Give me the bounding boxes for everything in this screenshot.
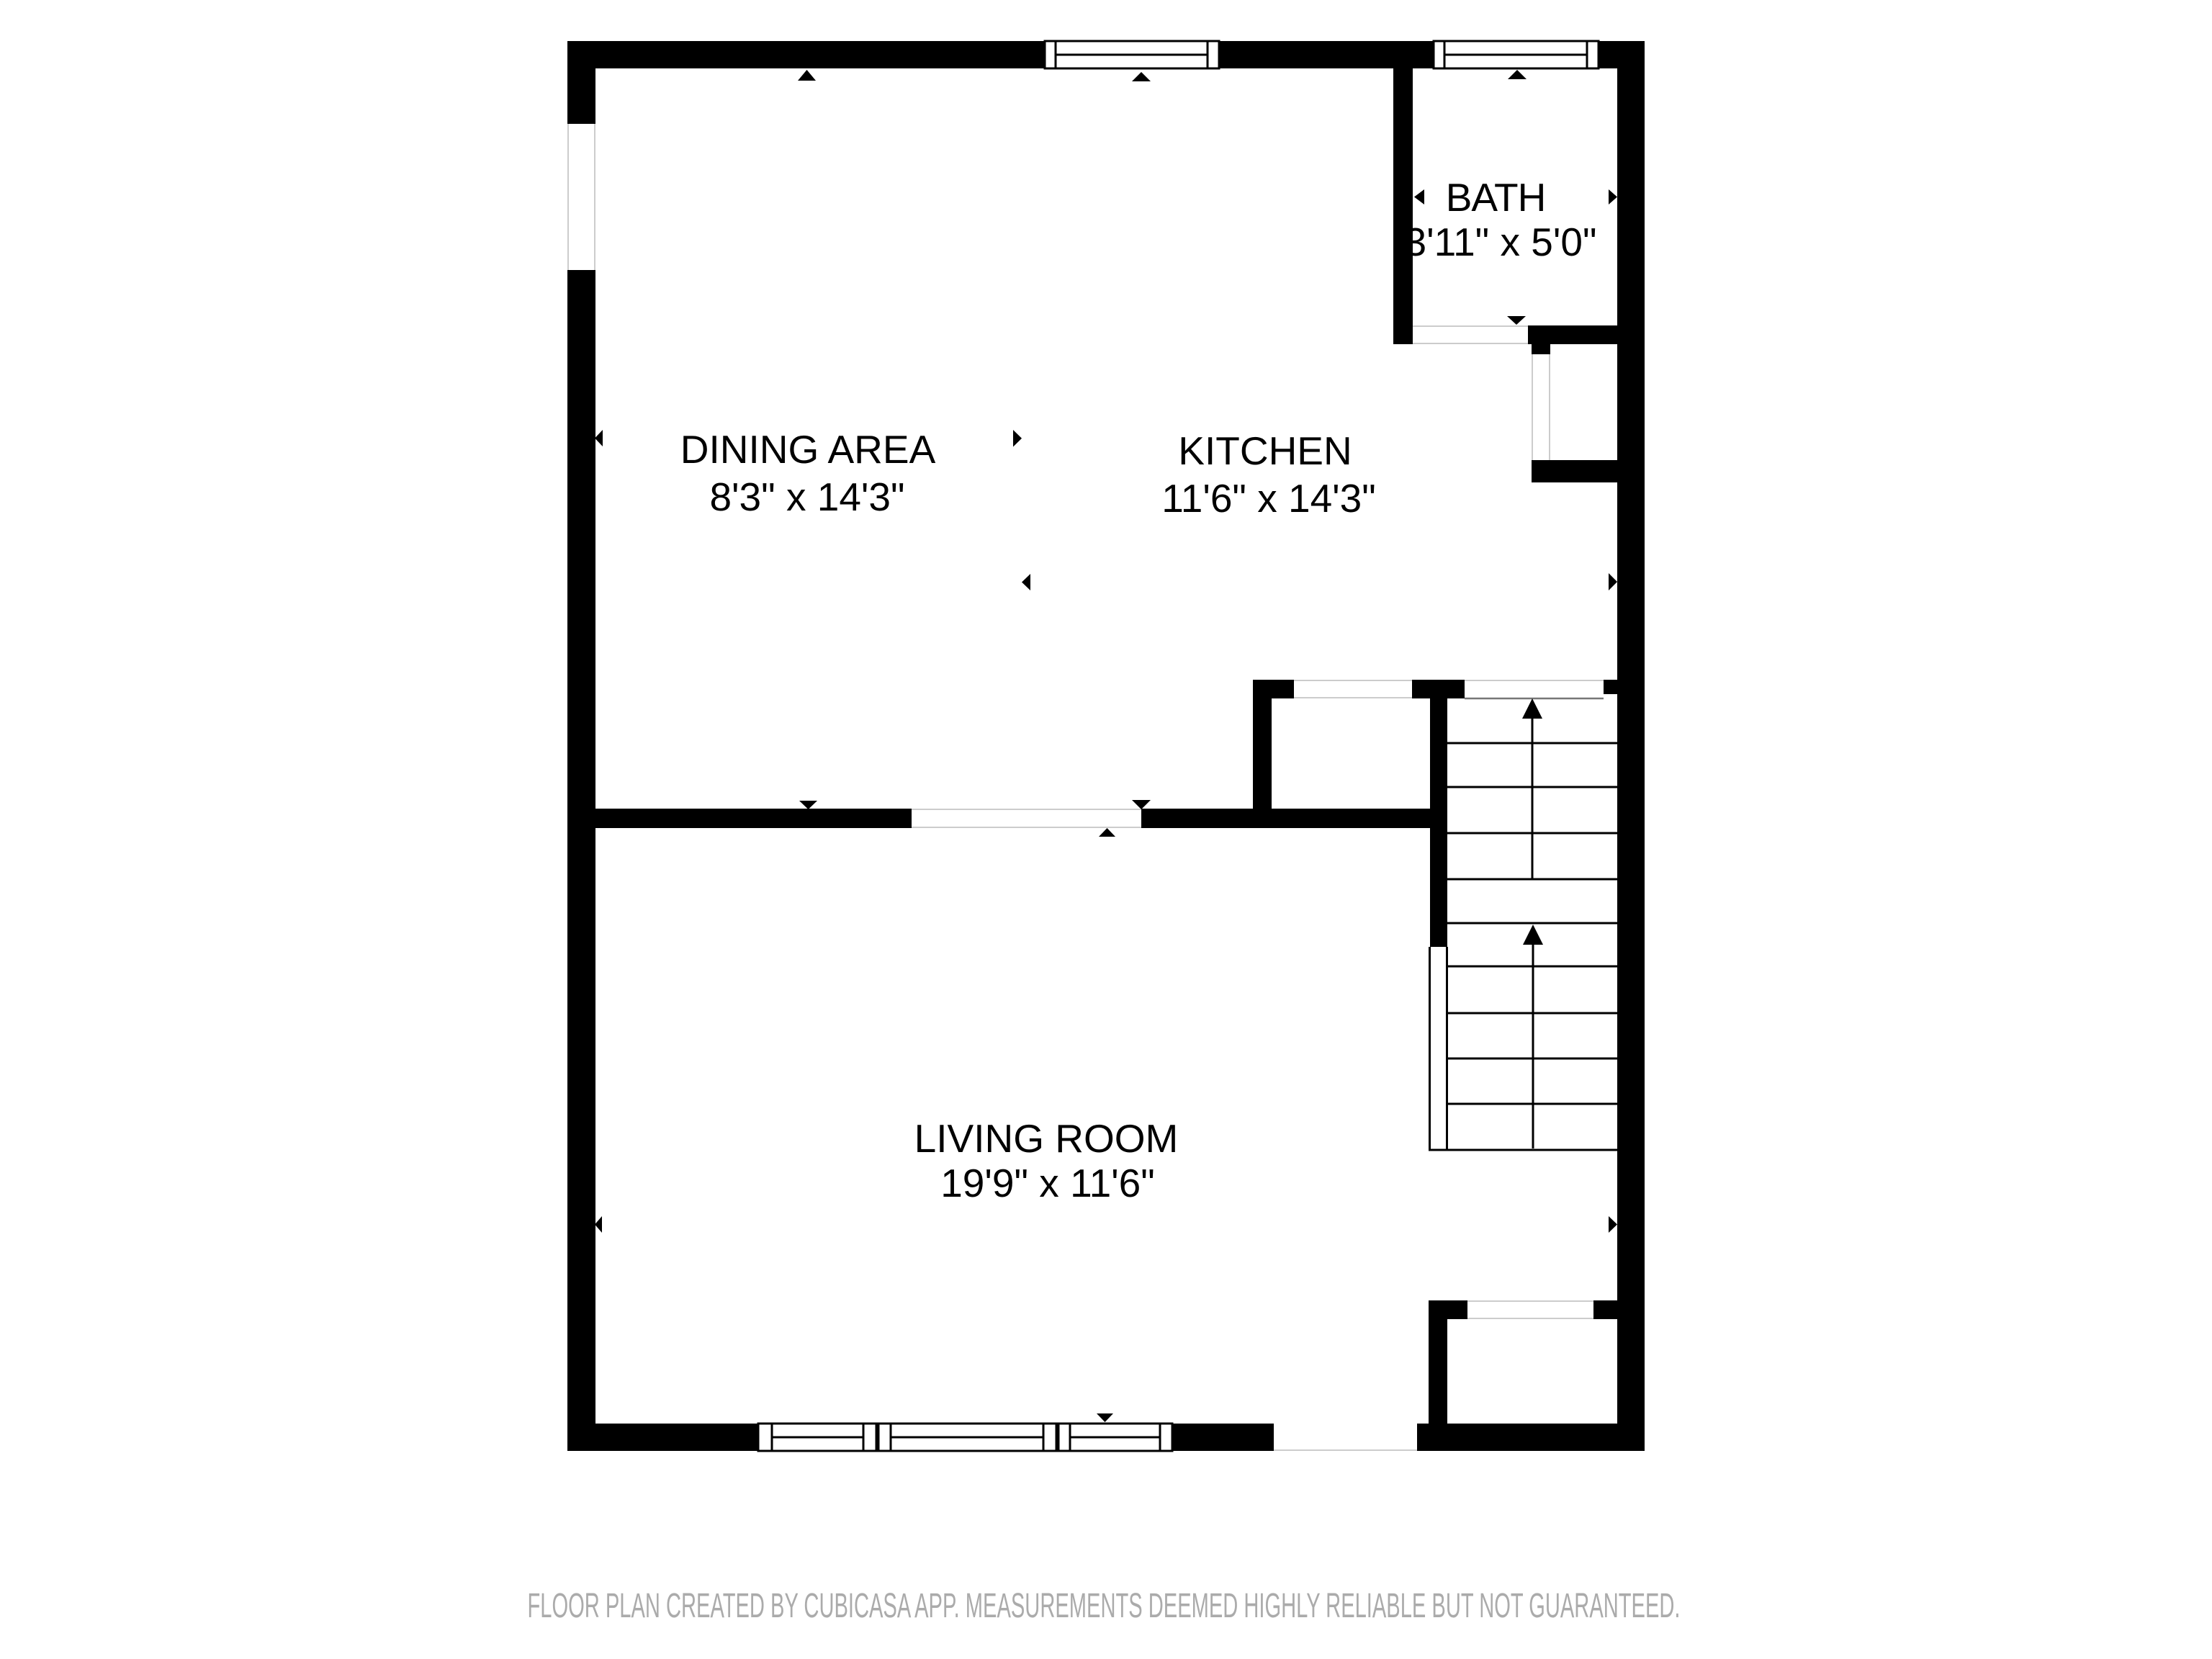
svg-text:11'6" x 14'3": 11'6" x 14'3" xyxy=(1161,476,1376,521)
svg-text:3'11" x 5'0": 3'11" x 5'0" xyxy=(1405,220,1597,264)
svg-text:LIVING ROOM: LIVING ROOM xyxy=(914,1116,1179,1161)
svg-text:19'9" x 11'6": 19'9" x 11'6" xyxy=(940,1161,1155,1205)
svg-text:KITCHEN: KITCHEN xyxy=(1178,428,1352,473)
svg-text:BATH: BATH xyxy=(1446,175,1546,220)
svg-text:DINING AREA: DINING AREA xyxy=(680,427,936,472)
svg-text:8'3" x 14'3": 8'3" x 14'3" xyxy=(709,475,904,519)
svg-text:FLOOR PLAN CREATED BY CUBICASA: FLOOR PLAN CREATED BY CUBICASA APP. MEAS… xyxy=(528,1587,1681,1625)
